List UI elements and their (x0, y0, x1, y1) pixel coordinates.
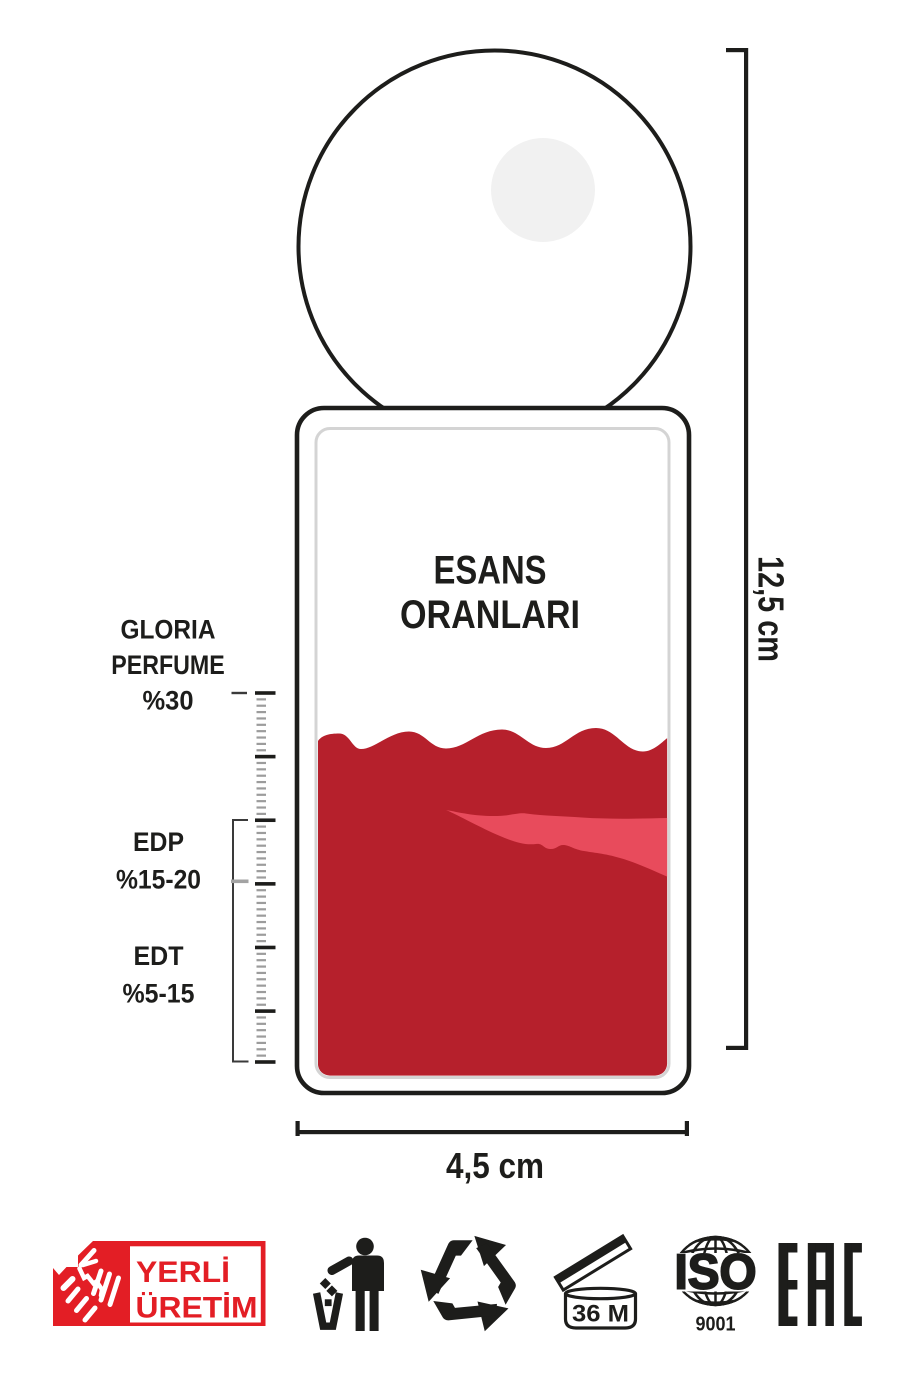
svg-text:%15-20: %15-20 (116, 865, 201, 895)
svg-text:YERLİ: YERLİ (136, 1256, 230, 1289)
svg-text:%30: %30 (143, 686, 194, 716)
svg-text:%5-15: %5-15 (123, 979, 195, 1009)
svg-text:ÜRETİM: ÜRETİM (136, 1291, 258, 1324)
svg-text:ESANS: ESANS (434, 549, 547, 593)
svg-text:PERFUME: PERFUME (111, 650, 225, 680)
svg-text:EDT: EDT (134, 941, 184, 971)
svg-text:EDP: EDP (133, 827, 184, 857)
svg-text:ORANLARI: ORANLARI (400, 593, 580, 637)
svg-text:4,5 cm: 4,5 cm (446, 1145, 544, 1186)
svg-text:GLORIA: GLORIA (121, 615, 216, 645)
svg-text:9001: 9001 (696, 1314, 736, 1336)
svg-text:ISO: ISO (675, 1246, 757, 1300)
svg-text:12,5 cm: 12,5 cm (751, 556, 792, 662)
svg-text:36 M: 36 M (572, 1301, 629, 1328)
